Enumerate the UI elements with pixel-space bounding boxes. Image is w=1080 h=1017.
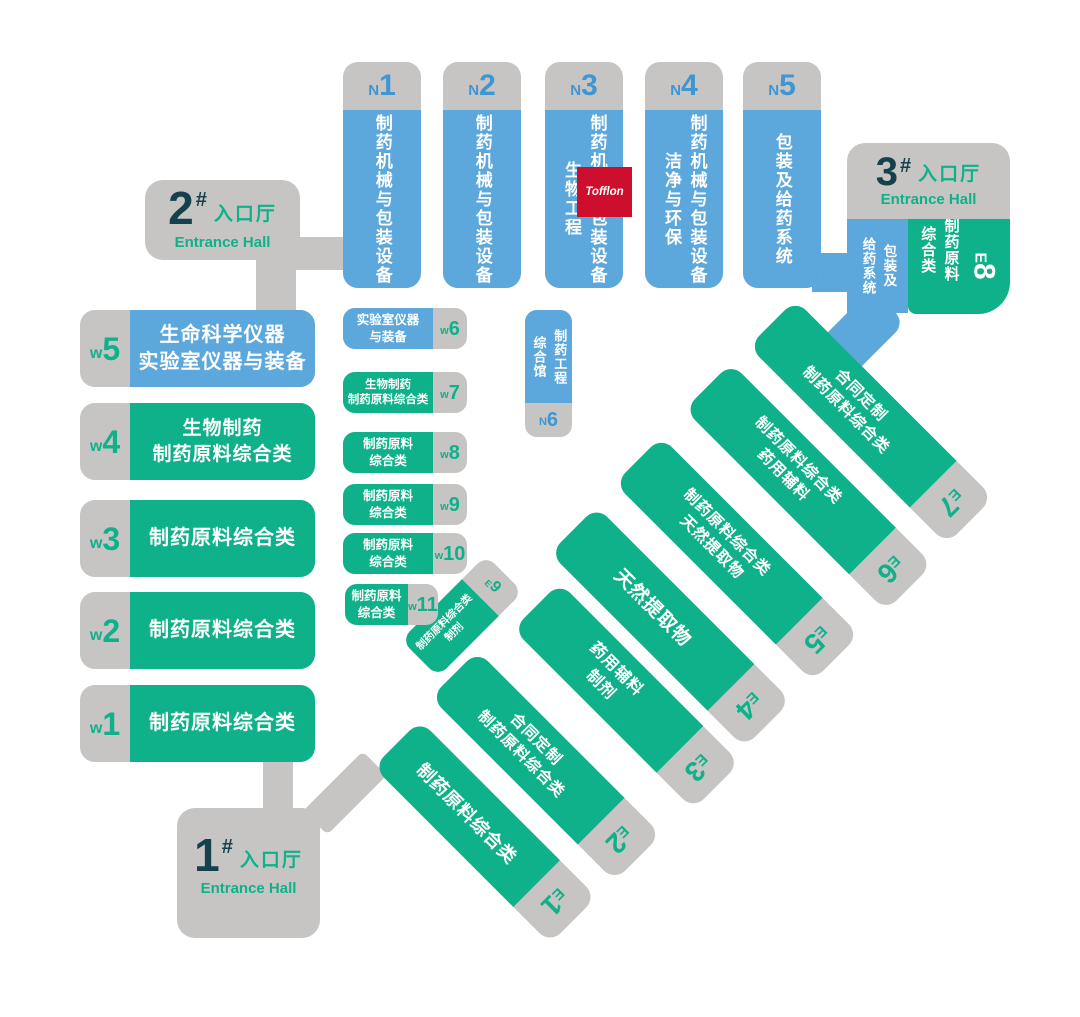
hall-w10-label: w10 <box>433 533 467 574</box>
entrance-1-subtitle: Entrance Hall <box>201 880 297 897</box>
entrance-hall-1[interactable]: 1#入口厅 Entrance Hall <box>177 808 320 938</box>
hall-w1-text: 制药原料综合类 <box>149 710 296 737</box>
hall-w9[interactable]: 制药原料 综合类 w9 <box>343 484 467 525</box>
hall-e3-text: 药用辅料 制剂 <box>569 638 648 717</box>
exhibition-floorplan: 制药原料综合类 E1 合同定制 制药原料综合类 E2 药用辅料 制剂 E3 天然… <box>0 0 1080 1017</box>
hall-n5-label: N5 <box>743 62 821 110</box>
hall-w11-body: 制药原料 综合类 <box>345 584 408 625</box>
hall-e6-text: 制药原料综合类 药用辅料 <box>734 413 845 524</box>
hall-w5-label: w5 <box>80 310 130 387</box>
hall-w4-body: 生物制药 制药原料综合类 <box>130 403 315 480</box>
hall-n3-label: N3 <box>545 62 623 110</box>
hall-w2-body: 制药原料综合类 <box>130 592 315 669</box>
hall-w5-text: 生命科学仪器 实验室仪器与装备 <box>139 322 307 376</box>
hall-w9-body: 制药原料 综合类 <box>343 484 433 525</box>
tofflon-logo: Tofflon <box>577 167 632 217</box>
hall-w9-label: w9 <box>433 484 467 525</box>
hall-n5-body: 包装及给药系统 <box>743 110 821 288</box>
hall-e8-label: E8 <box>964 218 1004 314</box>
connector-entrance1-w1 <box>263 760 293 812</box>
hall-w7-text: 生物制药 制药原料综合类 <box>348 378 429 408</box>
hall-w7-body: 生物制药 制药原料综合类 <box>343 372 433 413</box>
hall-e8-side-text: 包装及 给药系统 <box>857 237 899 295</box>
hall-w2-text: 制药原料综合类 <box>149 617 296 644</box>
hall-w6-body: 实验室仪器 与装备 <box>343 308 433 349</box>
hall-w6[interactable]: 实验室仪器 与装备 w6 <box>343 308 467 349</box>
hall-w5-body: 生命科学仪器 实验室仪器与装备 <box>130 310 315 387</box>
hall-w3-body: 制药原料综合类 <box>130 500 315 577</box>
hall-n5[interactable]: N5 包装及给药系统 <box>743 62 821 288</box>
hall-n4-body: 制药机械与包装设备 洁净与环保 <box>645 110 723 288</box>
entrance-2-title: 2#入口厅 <box>168 189 277 228</box>
hall-n1[interactable]: N1 制药机械与包装设备 <box>343 62 421 288</box>
hall-e8[interactable]: 制药原料 综合类 E8 <box>908 218 1010 314</box>
hall-w3-text: 制药原料综合类 <box>149 525 296 552</box>
hall-w9-text: 制药原料 综合类 <box>363 488 413 521</box>
hall-n6[interactable]: 制药工程 综合馆 N6 <box>525 310 572 437</box>
hall-n5-text: 包装及给药系统 <box>769 133 795 266</box>
hall-w1-body: 制药原料综合类 <box>130 685 315 762</box>
entrance-3-title: 3#入口厅 <box>876 155 981 189</box>
hall-e8-text: 制药原料 综合类 <box>916 218 963 314</box>
hall-w6-label: w6 <box>433 308 467 349</box>
entrance-2-subtitle: Entrance Hall <box>175 234 271 251</box>
hall-e4-text: 天然提取物 <box>608 564 697 653</box>
hall-w1[interactable]: w1 制药原料综合类 <box>80 685 315 762</box>
hall-w2[interactable]: w2 制药原料综合类 <box>80 592 315 669</box>
hall-w5[interactable]: w5 生命科学仪器 实验室仪器与装备 <box>80 310 315 387</box>
hall-n6-body: 制药工程 综合馆 <box>525 310 572 403</box>
hall-w2-label: w2 <box>80 592 130 669</box>
hall-e7-text: 合同定制 制药原料综合类 <box>797 348 908 459</box>
entrance-hall-3[interactable]: 3#入口厅 Entrance Hall <box>847 143 1010 219</box>
hall-w11-text: 制药原料 综合类 <box>351 588 401 621</box>
hall-w8-text: 制药原料 综合类 <box>363 436 413 469</box>
hall-w10[interactable]: 制药原料 综合类 w10 <box>343 533 467 574</box>
hall-n2-label: N2 <box>443 62 521 110</box>
hall-e8-packaging-strip[interactable]: 包装及 给药系统 <box>847 218 908 313</box>
connector-entrance2-n1 <box>296 237 345 270</box>
entrance-3-subtitle: Entrance Hall <box>881 191 977 208</box>
hall-e1-text: 制药原料综合类 <box>411 758 522 869</box>
hall-w7[interactable]: 生物制药 制药原料综合类 w7 <box>343 372 467 413</box>
hall-w7-label: w7 <box>433 372 467 413</box>
entrance-1-title: 1#入口厅 <box>194 836 303 875</box>
hall-w8-body: 制药原料 综合类 <box>343 432 433 473</box>
hall-n6-text: 制药工程 综合馆 <box>528 329 570 385</box>
hall-n1-label: N1 <box>343 62 421 110</box>
hall-n4[interactable]: N4 制药机械与包装设备 洁净与环保 <box>645 62 723 288</box>
entrance-hall-2[interactable]: 2#入口厅 Entrance Hall <box>145 180 300 260</box>
hall-e5-text: 制药原料综合类 天然提取物 <box>663 485 774 596</box>
hall-w6-text: 实验室仪器 与装备 <box>357 312 420 345</box>
hall-w3-label: w3 <box>80 500 130 577</box>
hall-w8-label: w8 <box>433 432 467 473</box>
hall-n2-text: 制药机械与包装设备 <box>469 114 495 285</box>
hall-w3[interactable]: w3 制药原料综合类 <box>80 500 315 577</box>
hall-e2-text: 合同定制 制药原料综合类 <box>472 692 583 803</box>
hall-w1-label: w1 <box>80 685 130 762</box>
hall-w10-body: 制药原料 综合类 <box>343 533 433 574</box>
hall-n6-label: N6 <box>525 403 572 437</box>
hall-n2[interactable]: N2 制药机械与包装设备 <box>443 62 521 288</box>
hall-w11[interactable]: 制药原料 综合类 w11 <box>345 584 438 625</box>
hall-w4-text: 生物制药 制药原料综合类 <box>152 416 292 467</box>
hall-w4-label: w4 <box>80 403 130 480</box>
hall-w4[interactable]: w4 生物制药 制药原料综合类 <box>80 403 315 480</box>
hall-n1-body: 制药机械与包装设备 <box>343 110 421 288</box>
hall-n4-text: 制药机械与包装设备 洁净与环保 <box>659 114 710 285</box>
hall-w11-label: w11 <box>408 584 438 625</box>
hall-w10-text: 制药原料 综合类 <box>363 537 413 570</box>
hall-n2-body: 制药机械与包装设备 <box>443 110 521 288</box>
hall-w8[interactable]: 制药原料 综合类 w8 <box>343 432 467 473</box>
hall-n4-label: N4 <box>645 62 723 110</box>
hall-n1-text: 制药机械与包装设备 <box>369 114 395 285</box>
